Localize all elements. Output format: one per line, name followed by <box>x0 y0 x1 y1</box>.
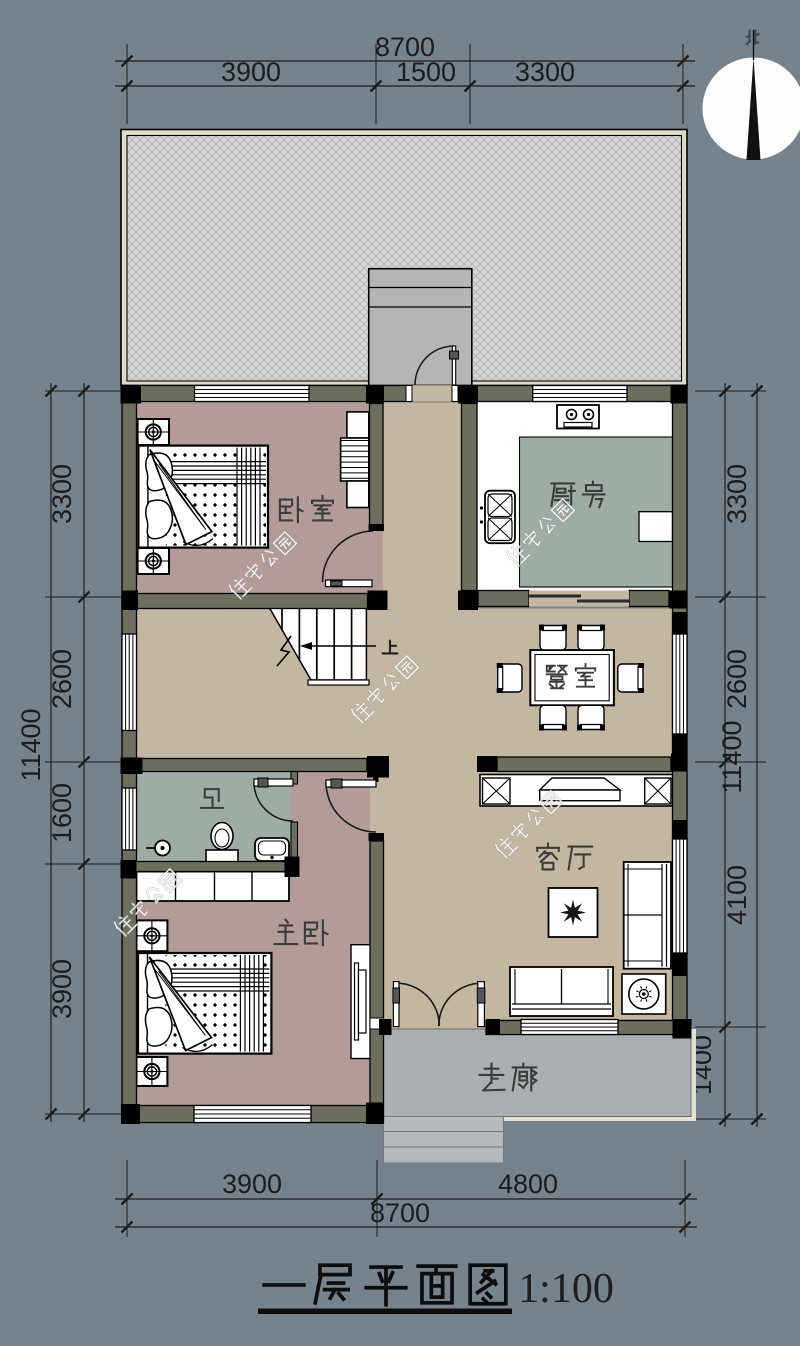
svg-text:4100: 4100 <box>722 865 752 925</box>
svg-text:11400: 11400 <box>16 708 46 781</box>
svg-text:2600: 2600 <box>47 649 77 709</box>
svg-text:2600: 2600 <box>722 649 752 709</box>
svg-text:3300: 3300 <box>722 464 752 524</box>
svg-text:3900: 3900 <box>47 959 77 1019</box>
svg-text:1600: 1600 <box>47 783 77 843</box>
svg-text:8700: 8700 <box>370 1198 430 1228</box>
svg-text:11400: 11400 <box>717 720 747 793</box>
svg-text:3300: 3300 <box>47 464 77 524</box>
svg-text:3900: 3900 <box>221 57 281 87</box>
svg-text:1500: 1500 <box>396 57 456 87</box>
svg-text:3900: 3900 <box>222 1169 282 1199</box>
svg-text:4800: 4800 <box>498 1169 558 1199</box>
svg-text:1:100: 1:100 <box>518 1266 614 1312</box>
svg-text:3300: 3300 <box>515 57 575 87</box>
